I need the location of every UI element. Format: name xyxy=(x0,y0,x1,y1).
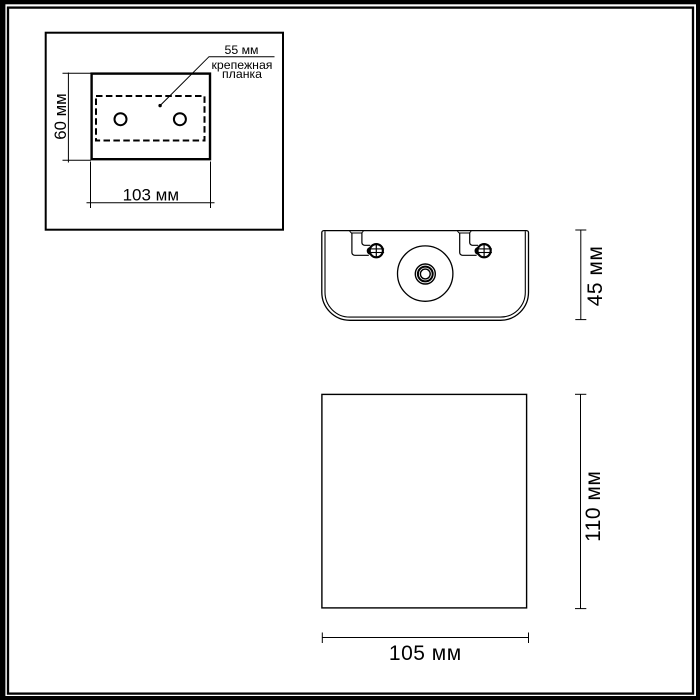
svg-text:45 мм: 45 мм xyxy=(584,246,607,307)
svg-text:110 мм: 110 мм xyxy=(582,471,605,542)
svg-text:планка: планка xyxy=(222,67,262,81)
svg-text:103 мм: 103 мм xyxy=(123,186,179,205)
svg-text:105 мм: 105 мм xyxy=(389,642,462,665)
svg-text:55 мм: 55 мм xyxy=(224,43,258,57)
svg-text:60 мм: 60 мм xyxy=(51,93,70,139)
